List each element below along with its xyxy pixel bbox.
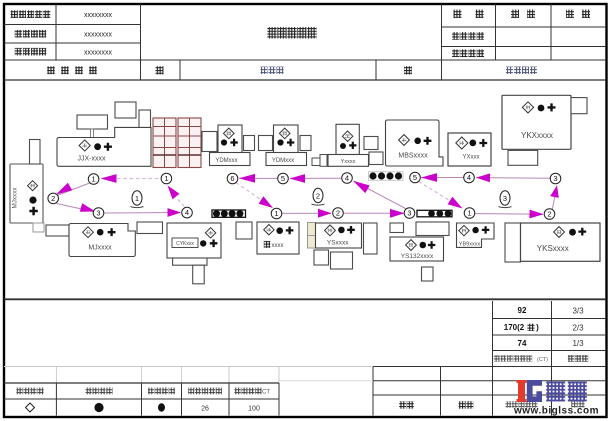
svg-text:3: 3 [407,209,411,218]
svg-text:JJX-xxxx: JJX-xxxx [78,156,107,163]
svg-text:YKSxxxx: YKSxxxx [537,244,569,253]
svg-text:YDMxxx: YDMxxx [272,158,294,164]
svg-text:1: 1 [135,194,139,203]
svg-text:1: 1 [164,174,168,183]
svg-text:2: 2 [51,194,55,203]
svg-text:YDMxxx: YDMxxx [215,158,237,164]
svg-text:): ) [536,323,539,332]
svg-text:92: 92 [518,306,527,315]
svg-text:YKXxxxx: YKXxxxx [521,131,553,140]
svg-text:YS132xxxx: YS132xxxx [401,253,434,260]
svg-text:26: 26 [201,405,209,412]
svg-text:5: 5 [281,174,285,183]
svg-text:YXxxx: YXxxx [462,155,479,161]
svg-text:170(2: 170(2 [504,323,525,332]
svg-text:3/3: 3/3 [572,307,584,316]
svg-text:MJxxxx: MJxxxx [88,245,112,252]
svg-text:3: 3 [503,194,507,203]
svg-text:1: 1 [467,209,471,218]
svg-text:74: 74 [518,339,527,348]
svg-text:1: 1 [92,175,96,184]
svg-text:1: 1 [274,209,278,218]
svg-text:Yxxxx: Yxxxx [341,159,356,165]
svg-text:4: 4 [345,174,349,183]
svg-text:5: 5 [413,173,417,182]
svg-text:2: 2 [547,210,551,219]
svg-text:2: 2 [336,209,340,218]
svg-text:xxxxxxxx: xxxxxxxx [84,31,113,38]
svg-text:www.biglss.com: www.biglss.com [513,405,599,416]
svg-text:4: 4 [185,208,189,217]
svg-text:6: 6 [230,174,234,183]
svg-text:1/3: 1/3 [572,339,584,348]
svg-text:3: 3 [553,174,557,183]
svg-text:YSxxxx: YSxxxx [327,240,349,247]
svg-text:100: 100 [248,405,260,412]
svg-text:MBSxxxx: MBSxxxx [398,153,428,160]
svg-text:xxxxxxxx: xxxxxxxx [84,12,113,19]
svg-text:xxxxxxxx: xxxxxxxx [84,49,113,56]
svg-text:4: 4 [467,173,471,182]
svg-text:3: 3 [96,209,100,218]
svg-text:CT: CT [262,389,270,395]
svg-text:xxxx: xxxx [272,243,284,249]
svg-text:CYKxxx: CYKxxx [176,241,194,247]
svg-text:2/3: 2/3 [572,324,584,333]
svg-text:YB9xxxx: YB9xxxx [459,242,481,248]
svg-text:2: 2 [316,191,320,200]
svg-text:(CT): (CT) [537,357,548,363]
svg-text:MJxxxx: MJxxxx [12,187,19,209]
